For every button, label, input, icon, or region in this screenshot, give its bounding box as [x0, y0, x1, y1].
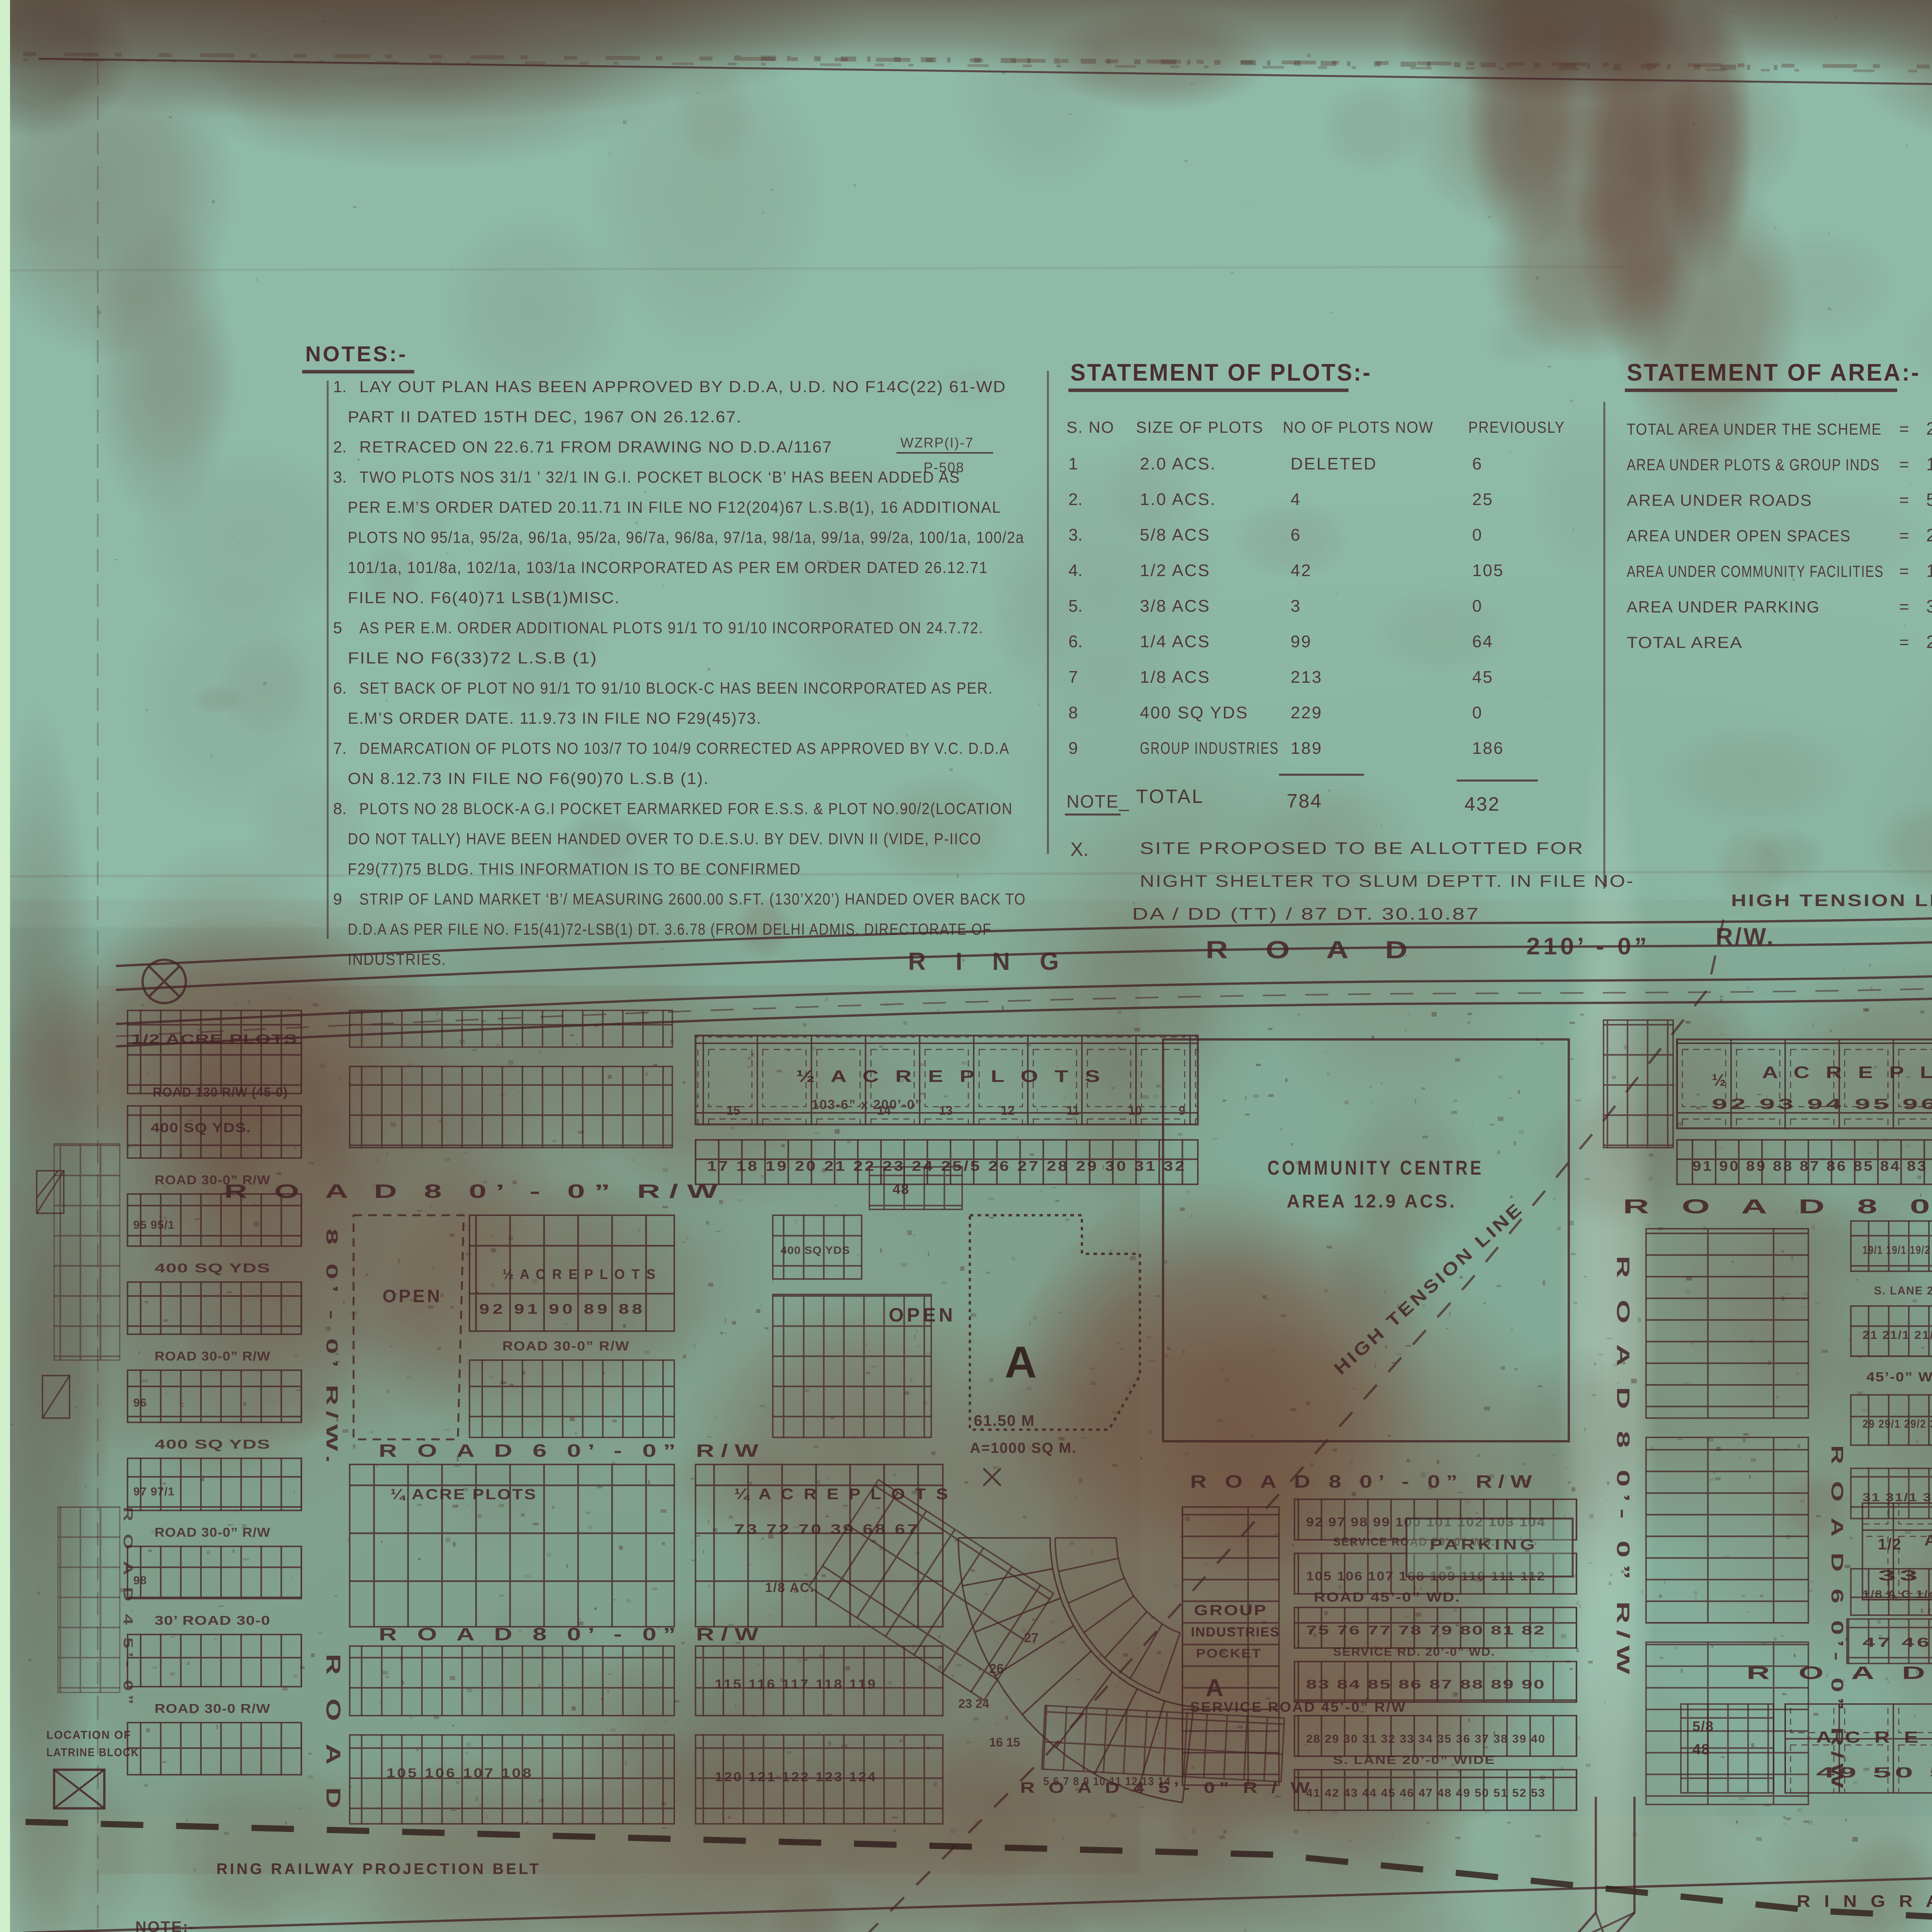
svg-text:27: 27: [1024, 1631, 1039, 1645]
svg-text:432: 432: [1464, 793, 1500, 815]
svg-text:4: 4: [1291, 490, 1301, 509]
svg-text:213: 213: [1291, 668, 1322, 687]
svg-text:GROUP: GROUP: [1194, 1602, 1267, 1619]
svg-text:29 29/1 29/2 30 30/1 30/2: 29 29/1 29/2 30 30/1 30/2: [1862, 1418, 1932, 1430]
svg-text:PLOTS NO 95/1a, 95/2a, 96/1a,: PLOTS NO 95/1a, 95/2a, 96/1a, 95/2a, 96/…: [348, 528, 1024, 546]
svg-text:S. NO: S. NO: [1066, 418, 1114, 436]
svg-text:3.: 3.: [333, 468, 347, 486]
svg-text:54.40 ACS: 54.40 ACS: [1926, 490, 1932, 510]
svg-text:92 93 94 95: 92 93 94 95 96 97 98 99 100: [1712, 1096, 1932, 1112]
svg-text:NOTE_: NOTE_: [1066, 791, 1129, 811]
svg-text:1/2 ACRE PLOTS: 1/2 ACRE PLOTS: [131, 1032, 298, 1046]
svg-text:189: 189: [1291, 739, 1322, 758]
svg-text:R O A D 8 0’ - 0” R: R O A D 8 0’ - 0” R/W: [224, 1180, 726, 1202]
svg-text:64: 64: [1472, 632, 1493, 651]
svg-text:2.0 ACS.: 2.0 ACS.: [1140, 454, 1216, 473]
svg-text:8 0’ - 0’ R/W.: 8 0’ - 0’ R/W.: [323, 1229, 341, 1468]
svg-text:0: 0: [1472, 526, 1483, 544]
svg-text:NO OF PLOTS NOW: NO OF PLOTS NOW: [1283, 418, 1434, 436]
svg-text:6: 6: [1472, 454, 1483, 473]
svg-text:PER E.M’S ORDER DATED 20.11.71: PER E.M’S ORDER DATED 20.11.71 IN FILE N…: [348, 498, 1001, 516]
svg-text:HIGH TENSION LINE: HIGH TENSION LINE: [1731, 891, 1932, 910]
svg-text:1.: 1.: [333, 378, 347, 396]
svg-text:0: 0: [1472, 703, 1483, 722]
svg-text:TOTAL: TOTAL: [1136, 786, 1204, 807]
svg-text:7.: 7.: [333, 739, 347, 757]
svg-text:TWO PLOTS NOS 31/1 ' 32/1 IN G: TWO PLOTS NOS 31/1 ' 32/1 IN G.I. POCKET…: [359, 468, 960, 486]
svg-text:400 SQ YDS: 400 SQ YDS: [155, 1437, 270, 1451]
svg-text:229: 229: [1291, 703, 1322, 722]
svg-text:1: 1: [1068, 454, 1078, 473]
svg-text:9: 9: [333, 890, 342, 908]
svg-text:A C R E: A C R E: [1924, 1532, 1932, 1549]
svg-text:A=1000 SQ M.: A=1000 SQ M.: [970, 1440, 1077, 1456]
svg-text:5/8 ACS: 5/8 ACS: [1140, 526, 1210, 544]
svg-text:210’ - 0”: 210’ - 0”: [1526, 933, 1650, 960]
svg-text:83 84 85 86 87 88 89 90: 83 84 85 86 87 88 89 90: [1306, 1677, 1546, 1691]
svg-text:=: =: [1899, 526, 1909, 545]
svg-text:SET BACK OF PLOT NO 91/1 TO 91: SET BACK OF PLOT NO 91/1 TO 91/10 BLOCK-…: [359, 679, 993, 697]
svg-text:25: 25: [1472, 490, 1493, 509]
svg-text:2.: 2.: [333, 438, 347, 456]
svg-text:8: 8: [1068, 703, 1078, 722]
svg-text:42: 42: [1291, 561, 1312, 580]
svg-text:AREA UNDER PARKING: AREA UNDER PARKING: [1627, 598, 1820, 616]
svg-text:DO NOT TALLY) HAVE BEEN HANDED: DO NOT TALLY) HAVE BEEN HANDED OVER TO D…: [348, 830, 981, 848]
svg-text:A: A: [1206, 1674, 1223, 1702]
svg-text:R O A D 8 0’ - 0 R/: R O A D 8 0’ - 0 R/W.: [1623, 1196, 1932, 1218]
svg-text:R O A D 4 5’- 0”: R O A D 4 5’- 0”: [121, 1507, 135, 1708]
svg-text:DELETED: DELETED: [1291, 454, 1377, 473]
svg-text:TOTAL AREA UNDER THE SCHEME: TOTAL AREA UNDER THE SCHEME: [1627, 420, 1882, 438]
svg-text:1/8 ACS: 1/8 ACS: [1140, 668, 1210, 687]
svg-text:3/8 ACS: 3/8 ACS: [1140, 597, 1210, 616]
svg-text:9: 9: [1068, 739, 1078, 758]
svg-text:E.M’S ORDER DATE. 11.9.73 IN F: E.M’S ORDER DATE. 11.9.73 IN FILE NO F29…: [348, 709, 762, 727]
svg-text:AREA UNDER OPEN SPACES: AREA UNDER OPEN SPACES: [1627, 527, 1851, 545]
svg-text:101/1a, 101/8a, 102/1a, 103/1a: 101/1a, 101/8a, 102/1a, 103/1a INCORPORA…: [348, 558, 988, 577]
svg-text:1/2: 1/2: [1878, 1536, 1902, 1553]
svg-text:0: 0: [1472, 597, 1483, 616]
svg-text:A C R E P L O T S: A C R E P L O T S: [1762, 1063, 1932, 1082]
svg-text:WZRP(I)-7: WZRP(I)-7: [900, 435, 974, 451]
svg-text:RING RAILWAY PROJECTION BEL: RING RAILWAY PROJECTION BELT: [216, 1861, 541, 1878]
svg-text:20.11 ACS: 20.11 ACS: [1926, 525, 1932, 545]
svg-text:OPEN: OPEN: [383, 1286, 442, 1306]
svg-text:R O A D 6 0’ - 0” R: R O A D 6 0’ - 0” R/W: [379, 1440, 765, 1461]
svg-text:23 24: 23 24: [958, 1697, 989, 1711]
svg-text:=: =: [1899, 633, 1909, 652]
svg-text:½ A C R E P L O T S: ½ A C R E P L O T S: [502, 1266, 657, 1282]
svg-text:½: ½: [1712, 1071, 1726, 1090]
svg-text:1/4 ACS: 1/4 ACS: [1140, 632, 1210, 651]
svg-text:AREA UNDER ROADS: AREA UNDER ROADS: [1627, 491, 1812, 509]
svg-text:ROAD 30-0” R/W: ROAD 30-0” R/W: [155, 1525, 270, 1539]
svg-text:210.0 ACS.: 210.0 ACS.: [1926, 418, 1932, 439]
svg-text:16 15: 16 15: [989, 1735, 1020, 1749]
svg-text:ON 8.12.73 IN FILE NO F6(90)70: ON 8.12.73 IN FILE NO F6(90)70 L.S.B (1)…: [348, 769, 709, 787]
svg-text:=: =: [1899, 562, 1909, 581]
svg-text:=: =: [1899, 491, 1909, 510]
svg-text:61.50 M: 61.50 M: [974, 1412, 1035, 1429]
svg-text:45: 45: [1472, 668, 1493, 687]
svg-text:NIGHT SHELTER TO SLUM DEPTT. I: NIGHT SHELTER TO SLUM DEPTT. IN FILE NO-: [1140, 872, 1634, 891]
svg-text:AREA UNDER COMMUNITY FACILITIE: AREA UNDER COMMUNITY FACILITIES: [1627, 562, 1884, 580]
svg-text:R/W.: R/W.: [1716, 923, 1775, 950]
svg-text:D.D.A AS PER FILE NO. F15(41)7: D.D.A AS PER FILE NO. F15(41)72-LSB(1) D…: [348, 920, 992, 938]
svg-text:118.99 ACS: 118.99 ACS: [1926, 454, 1932, 474]
svg-text:12: 12: [1001, 1104, 1015, 1117]
svg-text:10: 10: [1128, 1104, 1142, 1117]
svg-text:ROAD 130 R/W (45-0): ROAD 130 R/W (45-0): [153, 1085, 288, 1100]
svg-text:P-508: P-508: [923, 459, 964, 475]
svg-text:=: =: [1899, 455, 1909, 474]
svg-text:NOTE:-: NOTE:-: [135, 1918, 196, 1932]
svg-text:PART II DATED 15TH DEC, 1967 O: PART II DATED 15TH DEC, 1967 ON 26.12.67…: [348, 408, 742, 426]
svg-text:GROUP INDUSTRIES: GROUP INDUSTRIES: [1140, 739, 1279, 758]
svg-text:14: 14: [877, 1104, 891, 1117]
svg-text:ROAD 30-0” R/W: ROAD 30-0” R/W: [155, 1349, 270, 1363]
svg-text:115 116 117 118 119: 115 116 117 118 119: [715, 1677, 877, 1692]
svg-text:92 91 90 89 88: 92 91 90 89 88: [479, 1301, 645, 1317]
svg-text:5.: 5.: [1068, 597, 1083, 616]
svg-text:POCKET: POCKET: [1196, 1646, 1262, 1660]
svg-text:OPEN: OPEN: [889, 1304, 956, 1326]
svg-text:STRIP OF LAND MARKET ‘B’/ MEAS: STRIP OF LAND MARKET ‘B’/ MEASURING 2600…: [359, 890, 1026, 908]
svg-text:DEMARCATION OF PLOTS NO 103/7: DEMARCATION OF PLOTS NO 103/7 TO 104/9 C…: [359, 739, 1010, 757]
svg-text:LOCATION OF: LOCATION OF: [46, 1729, 131, 1742]
svg-text:AREA UNDER PLOTS & GROUP INDS: AREA UNDER PLOTS & GROUP INDS: [1627, 456, 1880, 474]
svg-text:DA / DD (TT) / 87 DT. 30.10: DA / DD (TT) / 87 DT. 30.10.87: [1132, 905, 1480, 923]
svg-text:1/2 ACS: 1/2 ACS: [1140, 561, 1210, 580]
svg-text:3.60 ACS: 3.60 ACS: [1926, 596, 1932, 616]
svg-text:R O A D: R O A D: [322, 1654, 344, 1816]
svg-text:2.: 2.: [1068, 490, 1083, 509]
svg-text:31 31/1 31/2 32: 31 31/1 31/2 32: [1862, 1491, 1932, 1504]
svg-text:LAY OUT PLAN HAS BEEN APPROVED: LAY OUT PLAN HAS BEEN APPROVED BY D.D.A,…: [359, 378, 1006, 396]
svg-text:5: 5: [333, 619, 342, 637]
svg-text:120 121 122 123 124: 120 121 122 123 124: [715, 1770, 877, 1784]
svg-text:R O A D 8 0’ - 0”: R O A D 8 0’ - 0” R/W: [1747, 1663, 1932, 1683]
svg-text:28 29 30 31 32 33 34 35 36 37: 28 29 30 31 32 33 34 35 36 37 38 39 40: [1306, 1733, 1546, 1745]
svg-text:5/8: 5/8: [1692, 1718, 1714, 1734]
svg-text:R O A D 8 0’ - 0” R/W: R O A D 8 0’ - 0” R/W: [1190, 1471, 1538, 1492]
svg-text:95 95/1: 95 95/1: [133, 1219, 175, 1231]
svg-text:AS PER E.M. ORDER ADDITIONAL P: AS PER E.M. ORDER ADDITIONAL PLOTS 91/1 …: [359, 619, 983, 637]
svg-text:30’ ROAD 30-0: 30’ ROAD 30-0: [155, 1613, 270, 1628]
svg-text:400 SQ YDS.: 400 SQ YDS.: [151, 1121, 251, 1135]
svg-text:21 21/1 21/2 22 22/1: 21 21/1 21/2 22 22/1: [1862, 1329, 1932, 1342]
svg-text:99: 99: [1291, 632, 1312, 651]
svg-text:R O A D 8 0’- 0” R/W: R O A D 8 0’- 0” R/W: [1613, 1256, 1633, 1681]
svg-text:96: 96: [133, 1396, 147, 1409]
svg-text:26: 26: [989, 1662, 1004, 1676]
svg-text:SERVICE RD. 20’-0” WD.: SERVICE RD. 20’-0” WD.: [1333, 1646, 1495, 1658]
svg-text:6.: 6.: [1068, 632, 1083, 651]
svg-text:8.: 8.: [333, 799, 347, 818]
svg-text:R I N G R A I L W A Y L: R I N G R A I L W A Y L I N E: [1797, 1892, 1932, 1911]
svg-text:R O A D: R O A D: [1206, 936, 1422, 964]
svg-text:7: 7: [1068, 668, 1078, 687]
svg-text:ROAD 45’-0” WD.: ROAD 45’-0” WD.: [1314, 1590, 1461, 1605]
svg-text:A: A: [1005, 1338, 1037, 1387]
svg-text:S. LANE 20’-0” WIDE: S. LANE 20’-0” WIDE: [1333, 1754, 1495, 1767]
svg-text:97 97/1: 97 97/1: [133, 1485, 175, 1498]
svg-text:17 18 19 20 21 22 23 24: 17 18 19 20 21 22 23 24 25/5 26 27 28 29…: [707, 1158, 1186, 1174]
svg-text:400 SQ YDS: 400 SQ YDS: [1140, 703, 1248, 722]
svg-text:=: =: [1899, 597, 1909, 616]
svg-text:6.: 6.: [333, 679, 347, 697]
svg-text:PREVIOUSLY: PREVIOUSLY: [1468, 418, 1565, 436]
svg-text:3: 3: [1291, 597, 1301, 616]
svg-text:COMMUNITY CENTRE: COMMUNITY CENTRE: [1267, 1157, 1484, 1179]
svg-text:210.00 ACS: 210.00 ACS: [1926, 632, 1932, 652]
svg-text:=: =: [1899, 420, 1909, 439]
svg-text:400 SQ YDS: 400 SQ YDS: [155, 1261, 270, 1275]
svg-text:½ A C R E P L O T S: ½ A C R E P L O T S: [796, 1067, 1105, 1086]
svg-text:FILE NO F6(33)72 L.S.B (1): FILE NO F6(33)72 L.S.B (1): [348, 649, 597, 667]
svg-text:91 90 89 88 87 86 85 8: 91 90 89 88 87 86 85 84 83 8 80 7 76 77 …: [1692, 1158, 1932, 1174]
svg-text:LATRINE BLOCK: LATRINE BLOCK: [46, 1746, 139, 1759]
svg-text:9: 9: [1179, 1104, 1185, 1117]
svg-text:TOTAL AREA: TOTAL AREA: [1627, 633, 1743, 651]
svg-text:784: 784: [1287, 790, 1322, 812]
svg-text:45’-0” WD ROAD: 45’-0” WD ROAD: [1866, 1370, 1932, 1384]
svg-text:5 6 7 8 9 10 11 12 13 14: 5 6 7 8 9 10 11 12 13 14: [1043, 1775, 1171, 1788]
svg-text:ROAD 30-0 R/W: ROAD 30-0 R/W: [155, 1701, 270, 1716]
svg-text:AREA 12.9 ACS.: AREA 12.9 ACS.: [1287, 1191, 1457, 1212]
svg-text:A C R E P L O T S: A C R E P L O T S: [1816, 1728, 1932, 1746]
svg-text:103-6” x 200’-0”: 103-6” x 200’-0”: [811, 1097, 922, 1112]
svg-text:6: 6: [1291, 526, 1301, 544]
svg-text:47 46: 47 46: [1862, 1635, 1932, 1650]
svg-text:15: 15: [726, 1104, 740, 1117]
svg-text:SIZE OF PLOTS: SIZE OF PLOTS: [1136, 418, 1264, 436]
svg-text:SITE PROPOSED TO BE ALLOTTED F: SITE PROPOSED TO BE ALLOTTED FOR: [1140, 839, 1584, 858]
svg-text:ROAD 30-0” R/W: ROAD 30-0” R/W: [502, 1339, 630, 1354]
svg-text:STATEMENT OF AREA:-: STATEMENT OF AREA:-: [1627, 359, 1920, 386]
svg-text:49 50 51: 49 50 51 52 53: [1816, 1765, 1932, 1781]
svg-text:3.: 3.: [1068, 526, 1083, 544]
svg-text:¼ A C R E P L O T S: ¼ A C R E P L O T S: [734, 1486, 951, 1503]
svg-text:X.: X.: [1070, 838, 1088, 860]
svg-text:75 76 77 78 79 80 81 82: 75 76 77 78 79 80 81 82: [1306, 1623, 1546, 1637]
svg-text:12.90 ACS: 12.90 ACS: [1926, 561, 1932, 581]
svg-text:STATEMENT OF PLOTS:-: STATEMENT OF PLOTS:-: [1070, 359, 1372, 386]
svg-text:19/1 19/1 19/2 19/1 20/1: 19/1 19/1 19/2 19/1 20/1 20/2: [1862, 1244, 1932, 1257]
svg-text:PLOTS NO 28 BLOCK-A G.I POCKET: PLOTS NO 28 BLOCK-A G.I POCKET EARMARKED…: [359, 799, 1013, 818]
svg-text:NOTES:-: NOTES:-: [305, 342, 408, 366]
svg-text:400 SQ YDS: 400 SQ YDS: [781, 1244, 850, 1256]
svg-text:F29(77)75 BLDG. THIS INFORMATI: F29(77)75 BLDG. THIS INFORMATION IS TO B…: [348, 860, 801, 878]
svg-text:R I N G: R I N G: [908, 947, 1070, 975]
svg-text:105 106 107 108: 105 106 107 108: [386, 1766, 533, 1781]
svg-text:186: 186: [1472, 739, 1504, 758]
svg-text:S. LANE 20’-0” WD.: S. LANE 20’-0” WD.: [1874, 1284, 1932, 1297]
svg-text:4.: 4.: [1068, 561, 1083, 580]
svg-text:FILE NO. F6(40)71 LSB(1)MISC.: FILE NO. F6(40)71 LSB(1)MISC.: [348, 588, 620, 607]
svg-text:13: 13: [939, 1104, 953, 1117]
svg-text:RETRACED ON 22.6.71 FROM DRAWI: RETRACED ON 22.6.71 FROM DRAWING NO D.D.…: [359, 438, 832, 456]
svg-text:48: 48: [1692, 1742, 1710, 1758]
svg-text:41 42 43 44 45 46 47 48 49 50: 41 42 43 44 45 46 47 48 49 50 51 52 53: [1306, 1787, 1546, 1799]
svg-text:105: 105: [1472, 561, 1504, 580]
svg-text:1.0 ACS.: 1.0 ACS.: [1140, 490, 1216, 509]
